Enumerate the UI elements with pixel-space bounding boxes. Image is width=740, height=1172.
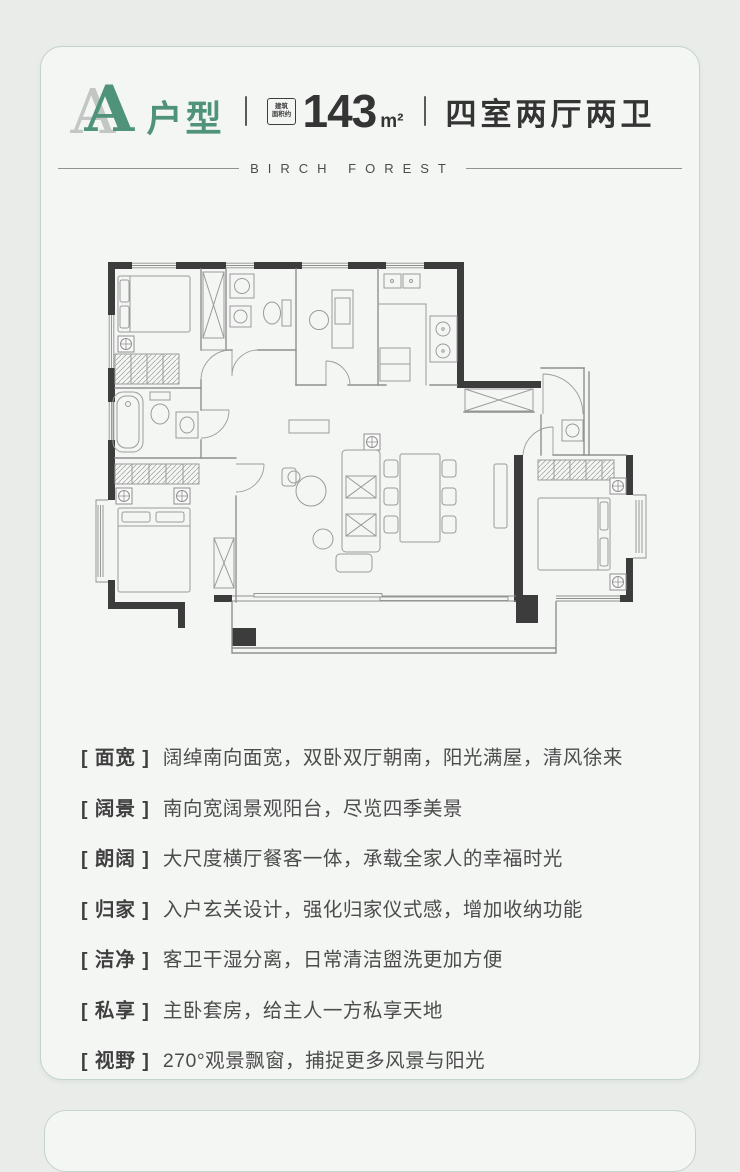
brand-name: BIRCH FOREST [250,161,455,176]
master-bath [113,392,198,452]
living-room [282,420,380,572]
feature-tag: [ 洁净 ] [81,943,150,972]
furniture [113,272,626,592]
feature-row: [ 面宽 ] 阔绰南向面宽，双卧双厅朝南，阳光满屋，清风徐来 [81,741,661,770]
header: A A 户型 建筑 面积约 143 m² 四室两厅两卫 [0,76,740,146]
feature-tag: [ 私享 ] [81,994,150,1023]
feature-desc: 客卫干湿分离，日常清洁盥洗更加方便 [163,943,503,972]
feature-tag: [ 面宽 ] [81,741,150,770]
rooms-label: 四室两厅两卫 [446,89,656,134]
feature-row: [ 归家 ] 入户玄关设计，强化归家仪式感，增加收纳功能 [81,893,661,922]
windows [96,263,646,601]
doors [201,350,583,492]
floor-plan [86,250,666,670]
feature-row: [ 朗阔 ] 大尺度横厅餐客一体，承载全家人的幸福时光 [81,842,661,871]
feature-tag: [ 归家 ] [81,893,150,922]
area-badge: 建筑 面积约 [267,98,296,125]
area-unit: m² [380,111,403,133]
feature-desc: 主卧套房，给主人一方私享天地 [163,994,443,1023]
entry-closet [203,272,224,338]
feature-row: [ 视野 ] 270°观景飘窗，捕捉更多风景与阳光 [81,1044,661,1073]
dining-area [384,454,507,542]
bedroom-topleft [115,276,190,384]
feature-row: [ 阔景 ] 南向宽阔景观阳台，尽览四季美景 [81,792,661,821]
feature-desc: 阔绰南向面宽，双卧双厅朝南，阳光满屋，清风徐来 [163,741,623,770]
divider-bar [245,96,247,126]
area-badge-line2: 面积约 [269,111,294,118]
feature-row: [ 私享 ] 主卧套房，给主人一方私享天地 [81,994,661,1023]
master-bedroom [538,460,626,590]
next-card-peek [44,1110,696,1172]
feature-tag: [ 视野 ] [81,1044,150,1073]
feature-row: [ 洁净 ] 客卫干湿分离，日常清洁盥洗更加方便 [81,943,661,972]
service-balcony [562,420,583,441]
feature-desc: 大尺度横厅餐客一体，承载全家人的幸福时光 [163,842,563,871]
unit-letter-main: A [85,78,135,142]
feature-list: [ 面宽 ] 阔绰南向面宽，双卧双厅朝南，阳光满屋，清风徐来 [ 阔景 ] 南向… [81,741,661,1095]
feature-tag: [ 朗阔 ] [81,842,150,871]
feature-desc: 入户玄关设计，强化归家仪式感，增加收纳功能 [163,893,583,922]
study-room [310,290,354,348]
area-group: 建筑 面积约 143 m² [267,88,404,134]
bedroom-bottomleft [115,464,234,592]
brand-row: BIRCH FOREST [0,158,740,178]
kitchen [378,274,457,385]
unit-type-label: 户型 [147,90,225,142]
area-value: 143 [303,88,377,134]
divider-bar [424,96,426,126]
feature-desc: 南向宽阔景观阳台，尽览四季美景 [163,792,463,821]
feature-desc: 270°观景飘窗，捕捉更多风景与阳光 [163,1044,485,1073]
poster-page: { "header": { "unit_letter": "A", "unit_… [0,0,740,1117]
brand-line-left [58,168,239,169]
area-badge-line1: 建筑 [269,103,294,110]
walls-dark [108,262,633,646]
guest-bath [230,274,291,327]
feature-tag: [ 阔景 ] [81,792,150,821]
duct-shaft [465,389,533,411]
brand-line-right [466,168,682,169]
unit-letter: A A [85,78,137,144]
